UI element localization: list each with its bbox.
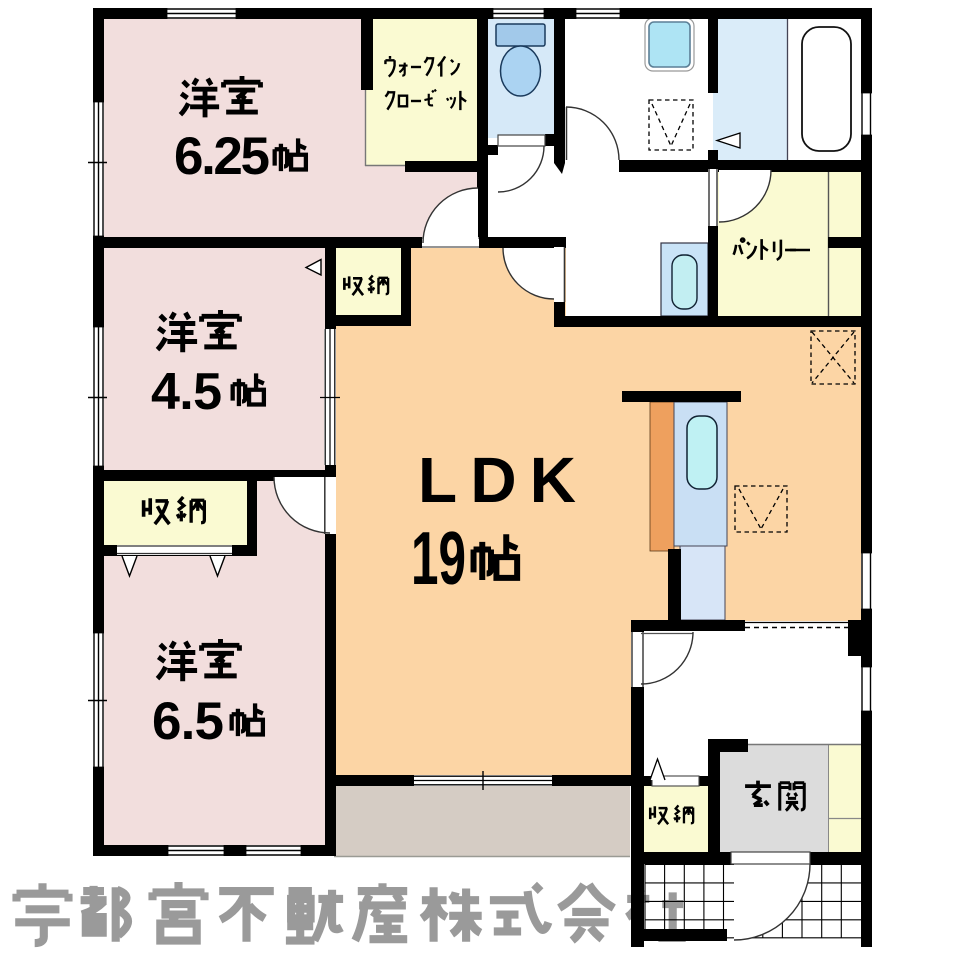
svg-text:4.5: 4.5 <box>151 363 222 421</box>
svg-text:6.5: 6.5 <box>152 692 224 751</box>
svg-text:LDK: LDK <box>418 444 576 516</box>
svg-text:19: 19 <box>411 516 466 600</box>
svg-text:6.25: 6.25 <box>174 127 270 186</box>
